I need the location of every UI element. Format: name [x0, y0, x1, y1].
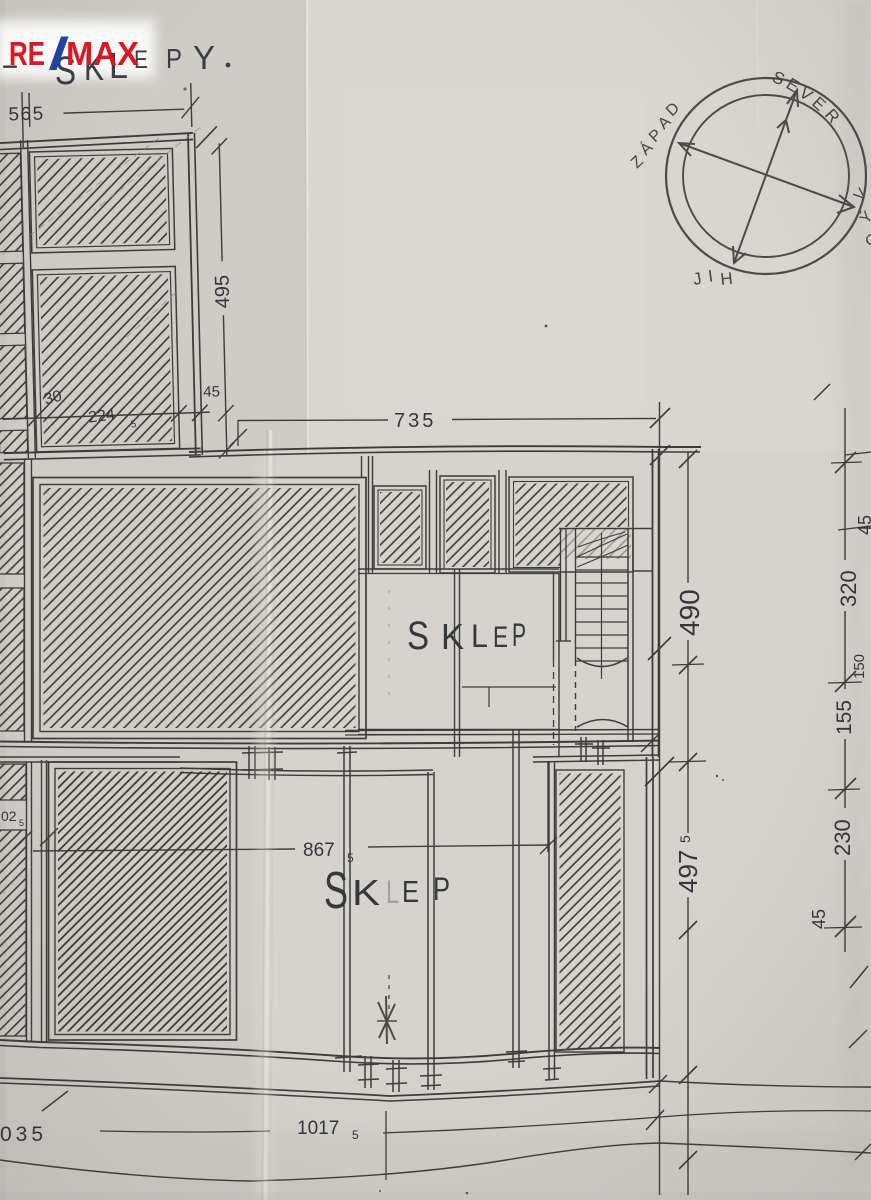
svg-text:867: 867 — [303, 840, 335, 861]
svg-text:L: L — [471, 618, 488, 654]
svg-text:K: K — [352, 872, 380, 913]
svg-text:5: 5 — [677, 835, 693, 843]
svg-text:E: E — [402, 874, 419, 909]
svg-text:P: P — [166, 43, 182, 74]
svg-text:5: 5 — [352, 1128, 359, 1142]
svg-text:S: S — [407, 614, 429, 658]
svg-text:490: 490 — [674, 589, 705, 636]
svg-text:497: 497 — [673, 850, 703, 893]
svg-text:035: 035 — [0, 1123, 47, 1146]
svg-text:150: 150 — [851, 654, 868, 679]
svg-text:5: 5 — [19, 818, 24, 828]
svg-text:320: 320 — [836, 570, 861, 607]
svg-text:E: E — [493, 621, 508, 654]
svg-text:224: 224 — [87, 406, 116, 426]
svg-text:K: K — [441, 616, 464, 657]
svg-text:P: P — [512, 617, 526, 653]
svg-text:RE: RE — [9, 35, 45, 72]
svg-text:155: 155 — [833, 700, 856, 735]
svg-text:495: 495 — [211, 275, 234, 309]
svg-text:45: 45 — [203, 383, 220, 400]
svg-text:S: S — [324, 862, 348, 920]
svg-text:735: 735 — [394, 410, 436, 432]
svg-text:230: 230 — [830, 819, 855, 856]
svg-text:L: L — [386, 874, 399, 910]
svg-text:45: 45 — [855, 515, 871, 535]
svg-text:45: 45 — [809, 909, 829, 929]
svg-text:P: P — [433, 871, 450, 907]
svg-text:02: 02 — [1, 808, 17, 824]
svg-text:MAX: MAX — [66, 35, 139, 72]
svg-text:Y: Y — [193, 39, 215, 76]
svg-text:H: H — [719, 269, 733, 289]
svg-text:5: 5 — [347, 851, 354, 865]
svg-text:565: 565 — [8, 104, 45, 126]
svg-text:1017: 1017 — [297, 1118, 339, 1139]
